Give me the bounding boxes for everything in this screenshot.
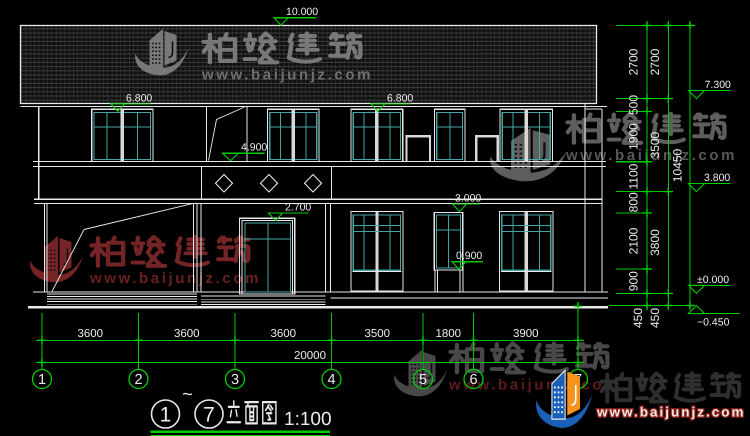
svg-text:−0.450: −0.450 xyxy=(697,317,730,329)
svg-text:1: 1 xyxy=(160,404,172,427)
svg-text:2.700: 2.700 xyxy=(285,202,311,214)
svg-text:3600: 3600 xyxy=(270,328,296,340)
svg-text:1800: 1800 xyxy=(435,328,461,340)
svg-text:www.baijunjz.com: www.baijunjz.com xyxy=(596,405,746,420)
svg-text:450: 450 xyxy=(631,308,645,328)
svg-text:3600: 3600 xyxy=(174,328,200,340)
svg-text:1:100: 1:100 xyxy=(284,409,332,430)
svg-text:3.000: 3.000 xyxy=(455,193,481,205)
svg-text:3: 3 xyxy=(231,372,239,388)
svg-text:1: 1 xyxy=(38,372,46,388)
svg-text:3500: 3500 xyxy=(364,328,390,340)
svg-text:7.300: 7.300 xyxy=(705,79,731,91)
svg-text:500: 500 xyxy=(627,95,641,115)
svg-text:www.baijunjz.com: www.baijunjz.com xyxy=(201,67,373,84)
svg-text:3800: 3800 xyxy=(648,229,662,256)
svg-text:10450: 10450 xyxy=(671,148,685,182)
svg-text:2: 2 xyxy=(134,372,142,388)
svg-text:2700: 2700 xyxy=(627,48,641,75)
svg-text:7: 7 xyxy=(203,404,215,427)
svg-text:3.800: 3.800 xyxy=(704,172,730,184)
svg-text:4.900: 4.900 xyxy=(241,142,267,154)
svg-text:20000: 20000 xyxy=(294,350,326,362)
svg-text:450: 450 xyxy=(648,308,662,328)
svg-text:3500: 3500 xyxy=(648,131,662,158)
svg-text:1100: 1100 xyxy=(627,163,641,189)
svg-text:5: 5 xyxy=(419,372,427,388)
svg-text:2100: 2100 xyxy=(627,227,641,254)
svg-text:1900: 1900 xyxy=(627,123,641,150)
svg-text:10.000: 10.000 xyxy=(286,6,318,18)
svg-text:800: 800 xyxy=(627,192,641,212)
svg-text:2700: 2700 xyxy=(648,48,662,75)
svg-text:4: 4 xyxy=(327,372,335,388)
svg-text:±0.000: ±0.000 xyxy=(697,274,729,286)
svg-text:6.800: 6.800 xyxy=(387,92,413,104)
svg-text:6: 6 xyxy=(469,372,477,388)
svg-text:0.900: 0.900 xyxy=(456,250,482,262)
svg-text:www.baijunjz.com: www.baijunjz.com xyxy=(89,270,261,287)
svg-text:6.800: 6.800 xyxy=(126,92,152,104)
svg-text:3900: 3900 xyxy=(513,328,539,340)
svg-text:3600: 3600 xyxy=(77,328,103,340)
svg-text:900: 900 xyxy=(627,271,641,291)
svg-text:~: ~ xyxy=(182,384,193,404)
